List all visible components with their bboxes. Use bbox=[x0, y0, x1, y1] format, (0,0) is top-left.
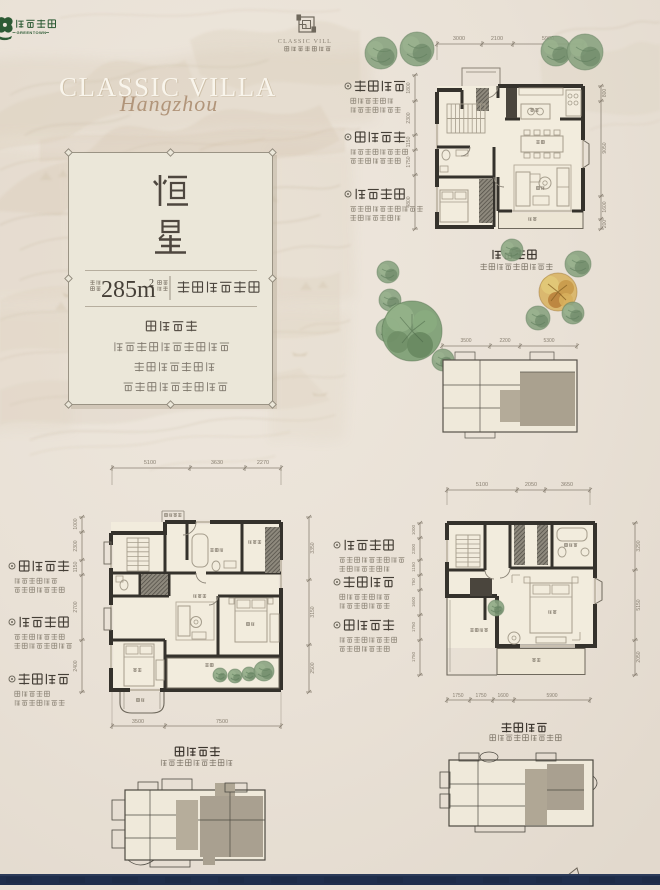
svg-text:1150: 1150 bbox=[411, 562, 416, 572]
svg-text:1600: 1600 bbox=[602, 201, 608, 212]
svg-text:Hangzhou: Hangzhou bbox=[119, 91, 218, 116]
svg-text:3630: 3630 bbox=[211, 460, 223, 466]
svg-text:GREENTOWN: GREENTOWN bbox=[17, 30, 47, 35]
svg-text:1750: 1750 bbox=[411, 621, 416, 632]
svg-text:1750: 1750 bbox=[452, 693, 463, 699]
svg-text:2270: 2270 bbox=[257, 460, 269, 466]
svg-text:1150: 1150 bbox=[406, 136, 412, 147]
svg-text:3650: 3650 bbox=[561, 482, 573, 488]
svg-text:1750: 1750 bbox=[406, 156, 412, 167]
svg-text:800: 800 bbox=[602, 89, 608, 98]
svg-text:1600: 1600 bbox=[497, 693, 508, 699]
svg-text:5150: 5150 bbox=[636, 599, 642, 610]
svg-text:3000: 3000 bbox=[453, 36, 465, 42]
svg-text:1150: 1150 bbox=[73, 561, 79, 572]
svg-text:CLASSIC VILL: CLASSIC VILL bbox=[278, 39, 332, 45]
svg-text:2300: 2300 bbox=[411, 543, 416, 554]
svg-text:200: 200 bbox=[602, 220, 608, 229]
svg-text:2050: 2050 bbox=[525, 482, 537, 488]
svg-text:3150: 3150 bbox=[310, 606, 316, 617]
svg-text:9050: 9050 bbox=[602, 142, 608, 153]
svg-text:1800: 1800 bbox=[406, 82, 412, 93]
svg-text:5100: 5100 bbox=[476, 482, 488, 488]
svg-text:1750: 1750 bbox=[411, 651, 416, 662]
svg-text:7500: 7500 bbox=[216, 719, 228, 725]
svg-text:5100: 5100 bbox=[144, 460, 156, 466]
svg-text:3500: 3500 bbox=[460, 338, 471, 344]
svg-text:4800: 4800 bbox=[406, 196, 412, 207]
svg-text:3500: 3500 bbox=[132, 719, 144, 725]
svg-text:2500: 2500 bbox=[310, 662, 316, 673]
svg-text:2300: 2300 bbox=[406, 112, 412, 123]
svg-text:2200: 2200 bbox=[499, 338, 510, 344]
svg-text:2300: 2300 bbox=[73, 540, 79, 551]
svg-text:2: 2 bbox=[149, 278, 154, 289]
svg-text:1600: 1600 bbox=[411, 596, 416, 607]
svg-text:1750: 1750 bbox=[475, 693, 486, 699]
svg-text:2400: 2400 bbox=[73, 660, 79, 671]
svg-text:5300: 5300 bbox=[543, 338, 554, 344]
svg-text:2050: 2050 bbox=[636, 651, 642, 662]
svg-text:3290: 3290 bbox=[636, 540, 642, 551]
svg-text:2100: 2100 bbox=[491, 36, 503, 42]
svg-text:750: 750 bbox=[411, 578, 416, 586]
svg-text:2700: 2700 bbox=[73, 601, 79, 612]
svg-text:3350: 3350 bbox=[310, 542, 316, 553]
svg-text:285m: 285m bbox=[101, 277, 156, 303]
svg-text:1000: 1000 bbox=[73, 518, 79, 529]
svg-text:5900: 5900 bbox=[546, 693, 557, 699]
svg-text:1000: 1000 bbox=[411, 524, 416, 535]
